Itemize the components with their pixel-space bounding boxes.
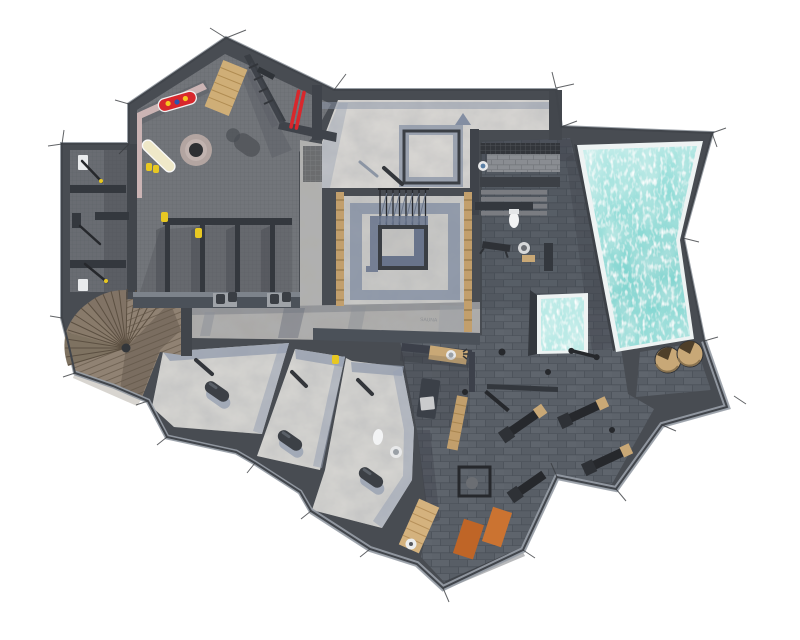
svg-text:SAUNA: SAUNA <box>420 317 438 324</box>
